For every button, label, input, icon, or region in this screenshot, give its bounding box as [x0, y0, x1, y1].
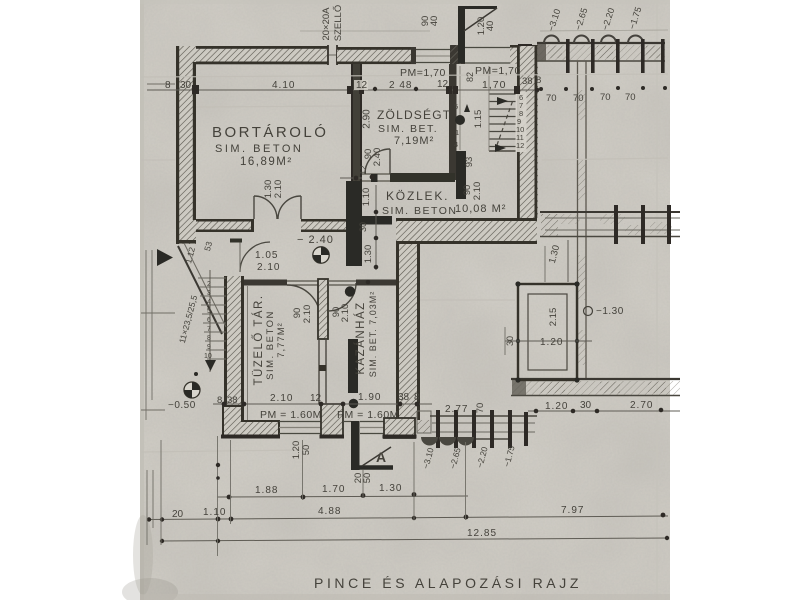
- svg-text:70: 70: [475, 403, 486, 414]
- svg-text:40: 40: [485, 21, 496, 32]
- svg-text:2.90: 2.90: [362, 109, 373, 129]
- svg-text:−1.30: −1.30: [596, 306, 624, 317]
- svg-text:SIM. BET.: SIM. BET.: [378, 123, 438, 135]
- svg-text:2.10: 2.10: [273, 180, 284, 199]
- svg-text:5: 5: [454, 102, 458, 111]
- svg-text:PM = 1.60M: PM = 1.60M: [260, 409, 322, 421]
- svg-text:2.10: 2.10: [340, 304, 351, 323]
- svg-text:30: 30: [580, 400, 592, 411]
- svg-text:2.77: 2.77: [445, 404, 468, 415]
- svg-text:7,19M²: 7,19M²: [394, 135, 434, 147]
- svg-text:8: 8: [207, 335, 211, 342]
- svg-text:7.97: 7.97: [561, 505, 584, 516]
- svg-text:50: 50: [362, 473, 373, 484]
- svg-text:12: 12: [358, 165, 368, 175]
- svg-text:1.10: 1.10: [361, 188, 372, 207]
- svg-text:8: 8: [165, 80, 171, 91]
- svg-text:38: 38: [398, 392, 410, 403]
- svg-text:ZÖLDSÉGT: ZÖLDSÉGT: [377, 107, 451, 122]
- svg-text:4.88: 4.88: [318, 506, 341, 517]
- svg-text:8: 8: [217, 395, 222, 406]
- svg-text:8: 8: [536, 75, 541, 86]
- svg-text:2.70: 2.70: [630, 400, 653, 411]
- svg-text:1.90: 1.90: [358, 392, 381, 403]
- svg-text:SIM. BET. 7,03M²: SIM. BET. 7,03M²: [368, 291, 378, 378]
- svg-text:8: 8: [414, 392, 420, 403]
- svg-text:1.05: 1.05: [255, 250, 278, 261]
- svg-text:1,70: 1,70: [482, 79, 506, 91]
- svg-text:5: 5: [207, 308, 211, 315]
- svg-text:38: 38: [227, 395, 238, 406]
- svg-text:BORTÁROLÓ: BORTÁROLÓ: [212, 124, 328, 141]
- svg-text:SIM. BETON: SIM. BETON: [265, 310, 276, 380]
- svg-text:70: 70: [625, 92, 636, 103]
- svg-text:38: 38: [522, 76, 533, 87]
- svg-text:1.88: 1.88: [255, 485, 278, 496]
- svg-text:4: 4: [207, 299, 211, 306]
- svg-text:3: 3: [207, 290, 211, 297]
- svg-text:1.70: 1.70: [322, 484, 345, 495]
- svg-text:2.15: 2.15: [548, 308, 559, 327]
- svg-text:6: 6: [207, 317, 211, 324]
- svg-text:KÖZLEK.: KÖZLEK.: [386, 189, 449, 203]
- svg-text:9: 9: [207, 344, 211, 351]
- svg-text:PM=1,70: PM=1,70: [475, 65, 521, 77]
- svg-text:16,89M²: 16,89M²: [240, 156, 293, 168]
- svg-text:− 2.40: − 2.40: [297, 234, 334, 246]
- svg-text:30: 30: [180, 80, 192, 91]
- svg-text:1.15: 1.15: [473, 110, 484, 129]
- svg-text:12.85: 12.85: [467, 528, 497, 539]
- svg-text:40: 40: [429, 16, 440, 27]
- svg-text:4: 4: [454, 140, 458, 149]
- svg-text:4.10: 4.10: [272, 80, 295, 91]
- svg-text:TÜZELŐ TÁR.: TÜZELŐ TÁR.: [251, 294, 265, 385]
- svg-text:30: 30: [358, 222, 368, 232]
- svg-text:20: 20: [172, 509, 184, 520]
- svg-text:2: 2: [207, 281, 211, 288]
- svg-text:12: 12: [437, 79, 449, 90]
- svg-text:30: 30: [505, 336, 515, 346]
- svg-text:1: 1: [455, 128, 459, 137]
- svg-text:82: 82: [465, 72, 475, 82]
- svg-text:PM = 1.60M: PM = 1.60M: [337, 409, 399, 421]
- svg-text:SIM. BETON: SIM. BETON: [382, 205, 457, 217]
- svg-text:2.10: 2.10: [270, 393, 293, 404]
- svg-text:PM=1,70: PM=1,70: [400, 67, 446, 79]
- svg-text:93: 93: [464, 157, 475, 168]
- svg-text:50: 50: [301, 445, 312, 456]
- svg-text:7: 7: [207, 326, 211, 333]
- svg-text:2.10: 2.10: [302, 305, 313, 324]
- svg-text:1.30: 1.30: [379, 483, 402, 494]
- svg-text:70: 70: [573, 93, 584, 104]
- svg-text:SIM. BETON: SIM. BETON: [215, 143, 303, 155]
- svg-text:KAZÁNHÁZ: KAZÁNHÁZ: [354, 301, 367, 374]
- svg-text:SZELLŐ: SZELLŐ: [333, 5, 344, 41]
- svg-text:2.10: 2.10: [472, 182, 483, 201]
- svg-text:70: 70: [546, 93, 557, 104]
- svg-text:12: 12: [516, 141, 524, 150]
- svg-text:PINCE ÉS ALAPOZÁSI RAJZ: PINCE ÉS ALAPOZÁSI RAJZ: [314, 575, 582, 591]
- svg-text:−0.50: −0.50: [168, 400, 196, 411]
- svg-text:A: A: [376, 449, 386, 465]
- svg-text:2.10: 2.10: [257, 262, 280, 273]
- svg-text:12: 12: [356, 80, 368, 91]
- svg-text:1.10: 1.10: [203, 507, 226, 518]
- svg-text:20×20A: 20×20A: [321, 7, 332, 41]
- svg-text:2 48: 2 48: [389, 80, 412, 91]
- svg-text:12: 12: [310, 393, 322, 404]
- svg-text:1.20: 1.20: [545, 401, 568, 412]
- svg-text:2.40: 2.40: [372, 148, 383, 167]
- svg-text:70: 70: [600, 92, 611, 103]
- svg-text:1.30: 1.30: [363, 245, 374, 264]
- svg-text:10: 10: [204, 353, 212, 360]
- svg-text:10,08 M²: 10,08 M²: [455, 203, 506, 215]
- svg-text:1.20: 1.20: [540, 337, 563, 348]
- svg-text:7,77M²: 7,77M²: [276, 322, 287, 358]
